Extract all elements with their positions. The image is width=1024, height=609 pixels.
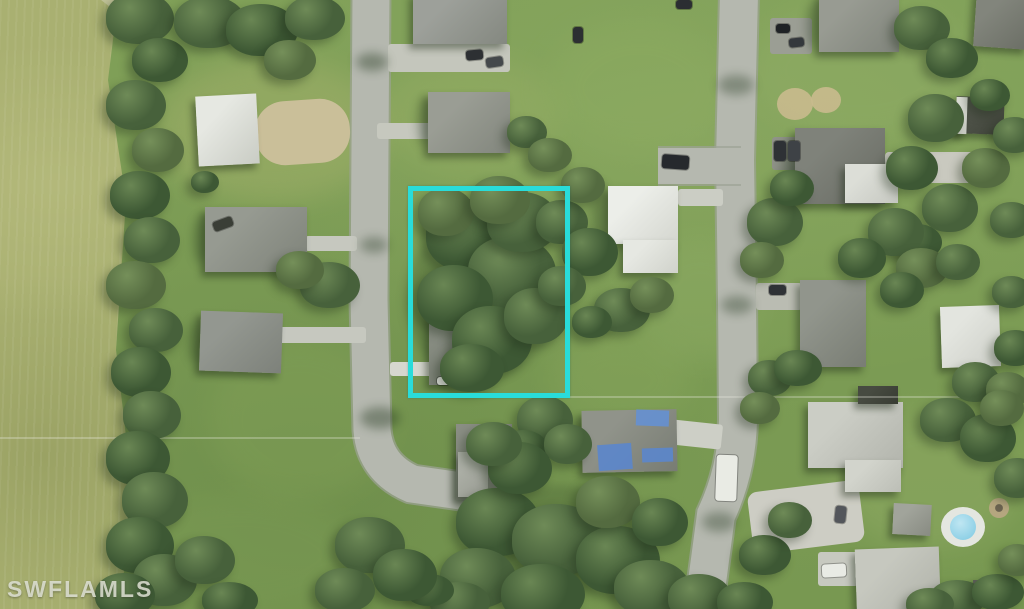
tree-canopy bbox=[466, 422, 522, 466]
tree-canopy bbox=[572, 306, 612, 338]
tree-canopy bbox=[132, 38, 188, 82]
tree-canopy bbox=[739, 535, 791, 575]
vehicle bbox=[676, 0, 692, 9]
tree-canopy bbox=[129, 308, 183, 352]
tree-canopy bbox=[106, 261, 166, 309]
tree-canopy bbox=[630, 277, 674, 313]
vehicle bbox=[769, 285, 786, 295]
shadow bbox=[360, 237, 388, 253]
shadow bbox=[721, 296, 753, 314]
driveway bbox=[678, 189, 723, 206]
tree-canopy bbox=[770, 170, 814, 206]
lanai-roof bbox=[858, 386, 898, 404]
driveway bbox=[253, 97, 352, 167]
tree-canopy bbox=[576, 476, 640, 528]
tree-canopy bbox=[106, 80, 166, 130]
vehicle bbox=[774, 141, 786, 161]
tree-canopy bbox=[768, 502, 812, 538]
vehicle bbox=[789, 37, 805, 48]
sand-circle bbox=[811, 87, 841, 113]
house-roof bbox=[845, 460, 901, 492]
tarp bbox=[636, 409, 670, 426]
vehicle bbox=[788, 141, 800, 161]
house-roof bbox=[608, 186, 678, 244]
tree-canopy bbox=[315, 568, 375, 609]
vehicle bbox=[573, 27, 583, 43]
tree-canopy bbox=[936, 244, 980, 280]
vehicle bbox=[466, 49, 484, 60]
tree-canopy bbox=[740, 242, 784, 278]
driveway bbox=[305, 236, 357, 251]
tree-canopy bbox=[993, 117, 1024, 153]
house-roof bbox=[819, 0, 899, 52]
tree-canopy bbox=[191, 171, 219, 193]
house-roof bbox=[428, 92, 510, 153]
tarp bbox=[597, 443, 633, 471]
shadow bbox=[360, 407, 400, 429]
house-roof bbox=[413, 0, 507, 44]
tree-canopy bbox=[992, 276, 1024, 308]
parcel-boundary-overlay bbox=[408, 186, 570, 398]
shed-roof bbox=[195, 93, 260, 166]
shadow bbox=[702, 512, 736, 532]
house-roof bbox=[973, 0, 1024, 50]
vehicle bbox=[715, 455, 738, 502]
vehicle bbox=[834, 505, 847, 523]
tree-canopy bbox=[998, 544, 1024, 576]
tree-canopy bbox=[124, 217, 180, 263]
shadow bbox=[356, 53, 388, 71]
vehicle bbox=[822, 563, 847, 577]
vehicle bbox=[776, 24, 790, 33]
tree-canopy bbox=[110, 171, 170, 219]
tree-canopy bbox=[922, 184, 978, 232]
tree-canopy bbox=[926, 38, 978, 78]
house-roof bbox=[808, 402, 903, 468]
power-line bbox=[0, 437, 360, 439]
vehicle bbox=[662, 154, 690, 170]
shadow bbox=[806, 2, 820, 50]
tree-canopy bbox=[970, 79, 1010, 111]
fire-pit bbox=[989, 498, 1009, 518]
tree-canopy bbox=[528, 138, 572, 172]
watermark: SWFLAMLS bbox=[7, 576, 153, 603]
tree-canopy bbox=[886, 146, 938, 190]
sand-circle bbox=[777, 88, 813, 120]
aerial-photo: SWFLAMLS bbox=[0, 0, 1024, 609]
pool bbox=[950, 514, 976, 540]
shed-roof bbox=[940, 305, 1001, 368]
tree-canopy bbox=[908, 94, 964, 142]
tree-canopy bbox=[132, 128, 184, 172]
power-line bbox=[570, 396, 1024, 398]
tree-canopy bbox=[994, 330, 1024, 366]
tree-canopy bbox=[990, 202, 1024, 238]
tree-canopy bbox=[972, 574, 1024, 609]
house-roof bbox=[199, 311, 283, 374]
tree-canopy bbox=[962, 148, 1010, 188]
driveway bbox=[278, 327, 366, 343]
tree-canopy bbox=[111, 347, 171, 397]
tree-canopy bbox=[980, 390, 1024, 426]
tree-canopy bbox=[276, 251, 324, 289]
tree-canopy bbox=[838, 238, 886, 278]
tree-canopy bbox=[774, 350, 822, 386]
tarp bbox=[642, 447, 673, 462]
tree-canopy bbox=[632, 498, 688, 546]
tree-canopy bbox=[264, 40, 316, 80]
shed-roof bbox=[892, 503, 932, 536]
shadow bbox=[718, 75, 754, 95]
tree-canopy bbox=[880, 272, 924, 308]
tree-canopy bbox=[373, 549, 437, 601]
house-roof bbox=[623, 240, 678, 273]
tree-canopy bbox=[544, 424, 592, 464]
tree-canopy bbox=[175, 536, 235, 584]
tree-canopy bbox=[740, 392, 780, 424]
